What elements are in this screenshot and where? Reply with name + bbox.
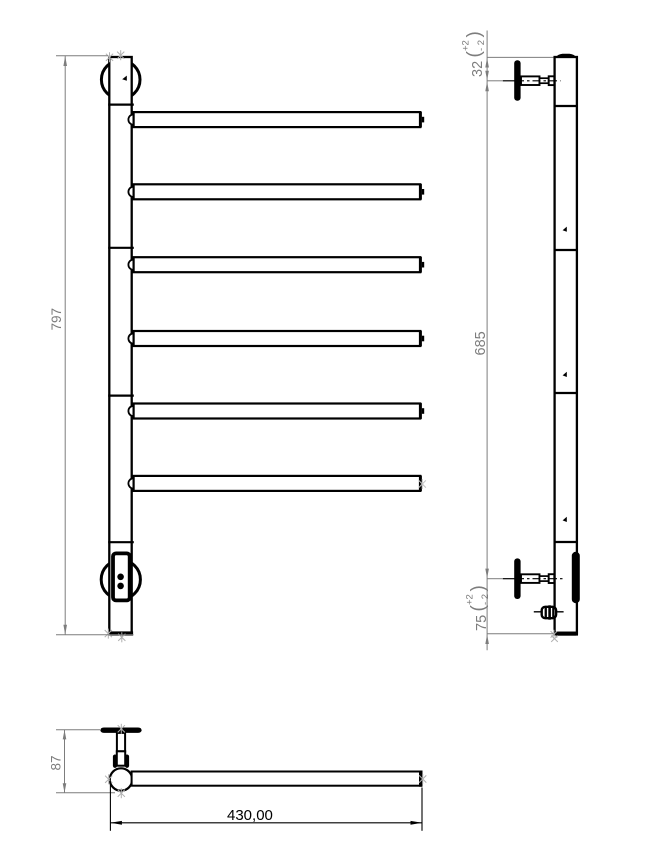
svg-text:685: 685 [473,331,489,355]
svg-text:32: 32 [470,61,486,77]
svg-text:- 2: - 2 [476,40,487,51]
svg-text:87: 87 [49,755,64,770]
svg-text:797: 797 [49,308,64,331]
svg-text:): ) [468,585,489,591]
svg-text:- 2: - 2 [480,594,491,605]
svg-text:+2: +2 [465,594,476,605]
svg-text:+2: +2 [461,40,472,51]
svg-text:75: 75 [474,615,490,631]
svg-text:430,00: 430,00 [227,807,273,824]
svg-text:): ) [464,31,485,37]
